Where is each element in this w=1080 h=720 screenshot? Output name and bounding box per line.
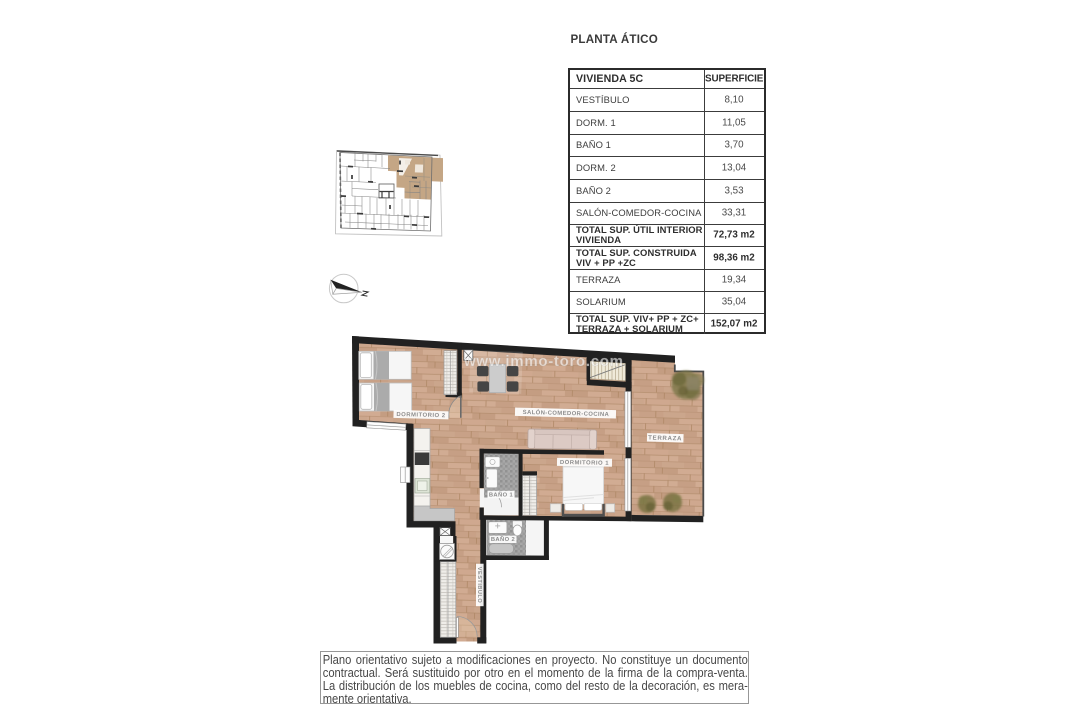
- svg-text:VESTIBULO: VESTIBULO: [476, 567, 482, 604]
- svg-text:www.immo-toro.com: www.immo-toro.com: [463, 353, 624, 370]
- svg-text:DORMITORIO 2: DORMITORIO 2: [396, 412, 445, 419]
- svg-text:BAÑO 1: BAÑO 1: [489, 491, 514, 498]
- svg-text:BAÑO 2: BAÑO 2: [491, 536, 515, 543]
- svg-text:DORMITORIO 1: DORMITORIO 1: [560, 460, 609, 467]
- svg-text:TERRAZA: TERRAZA: [648, 434, 682, 442]
